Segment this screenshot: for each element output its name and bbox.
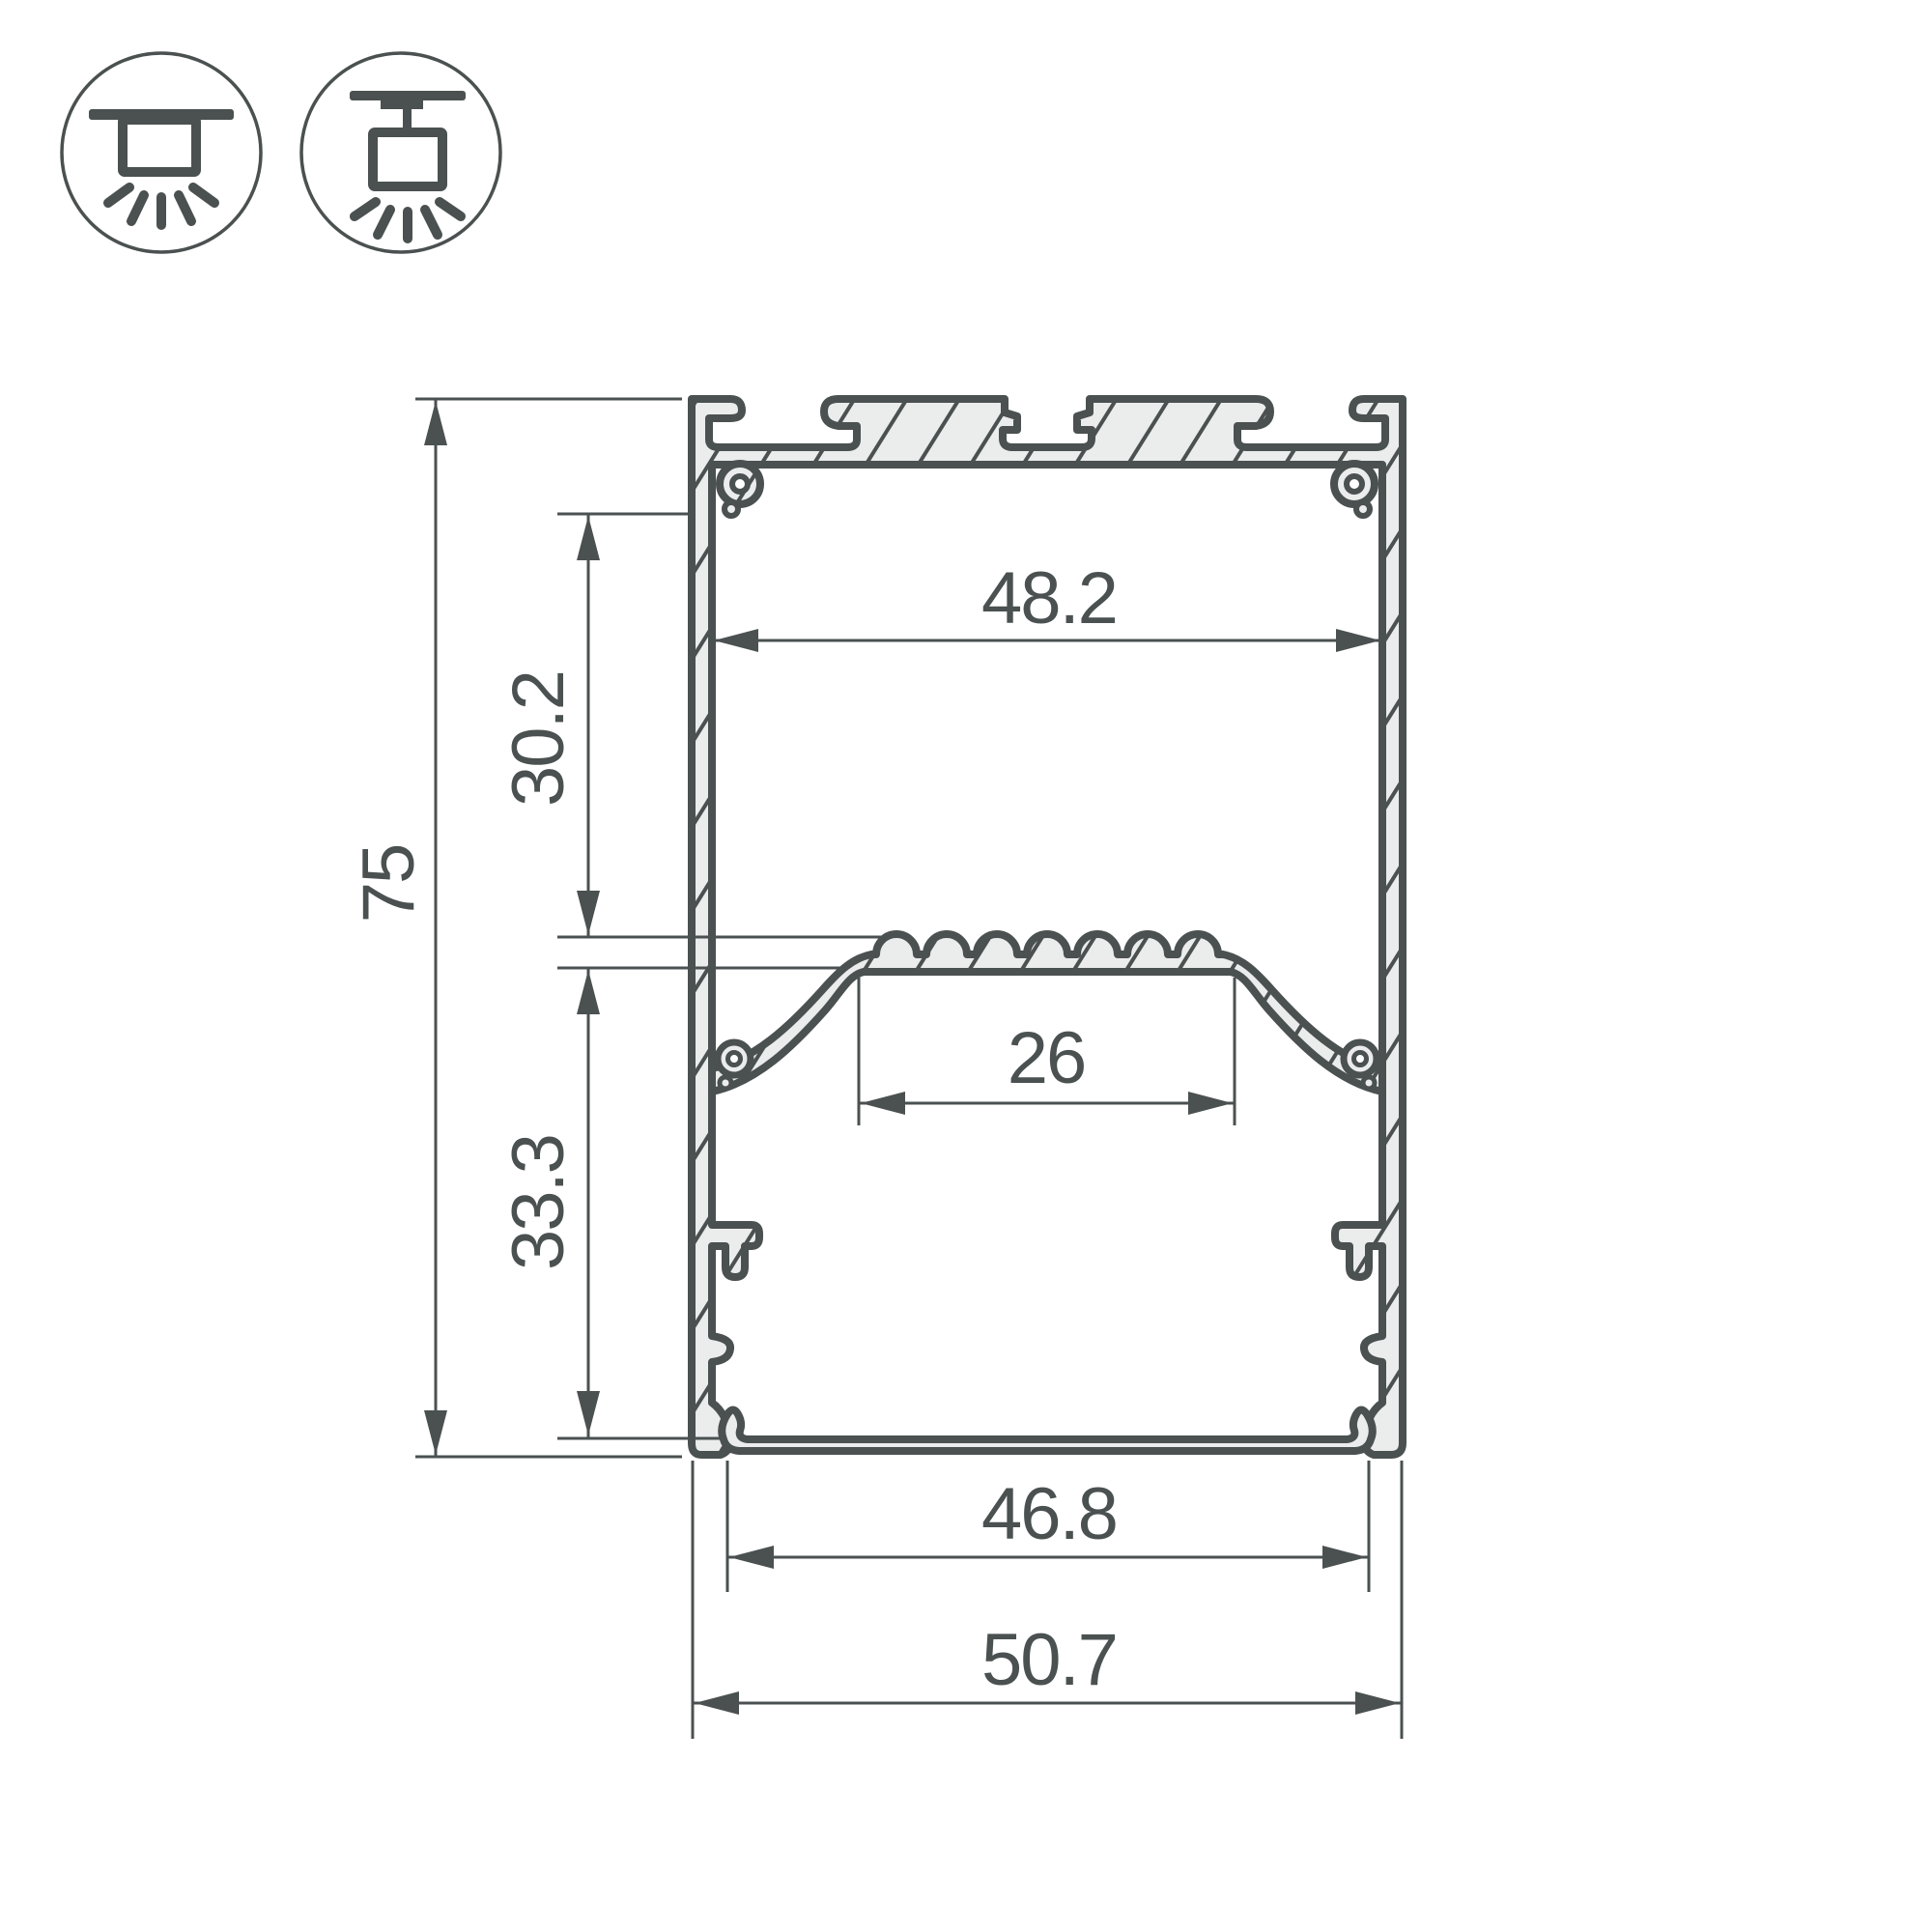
screw-boss-arch-left-hole bbox=[728, 1053, 741, 1065]
pendant-mount-icon bbox=[301, 53, 500, 252]
mount-bracket bbox=[381, 100, 423, 109]
dimension-label-lower-inner-height: 33.3 bbox=[497, 1135, 580, 1270]
dimension-label-top-inner-width: 48.2 bbox=[981, 557, 1117, 639]
screw-boss-top-right-hole bbox=[1347, 476, 1362, 492]
dimension-label-led-platform-width: 26 bbox=[1008, 1017, 1086, 1099]
screw-boss-top-left-tail bbox=[724, 502, 738, 516]
dimension-label-upper-inner-height: 30.2 bbox=[497, 671, 580, 807]
dimension-label-bottom-inner-width: 46.8 bbox=[981, 1473, 1117, 1555]
screw-boss-arch-right-hole bbox=[1354, 1053, 1367, 1065]
dimension-label-overall-height: 75 bbox=[348, 845, 430, 923]
screw-boss-arch-left-tail bbox=[720, 1077, 731, 1089]
dimension-label-overall-width: 50.7 bbox=[981, 1619, 1117, 1701]
profile-drawing: 75 30.2 33.3 48.2 bbox=[0, 0, 1932, 1932]
ceiling-line bbox=[350, 91, 466, 100]
technical-drawing-page: 75 30.2 33.3 48.2 bbox=[0, 0, 1932, 1932]
screw-boss-top-right-tail bbox=[1356, 502, 1370, 516]
luminaire-box bbox=[123, 120, 196, 172]
screw-boss-arch-right-tail bbox=[1363, 1077, 1375, 1089]
screw-boss-top-left-hole bbox=[732, 476, 748, 492]
luminaire-box bbox=[373, 132, 442, 186]
surface-mount-icon bbox=[62, 53, 261, 252]
